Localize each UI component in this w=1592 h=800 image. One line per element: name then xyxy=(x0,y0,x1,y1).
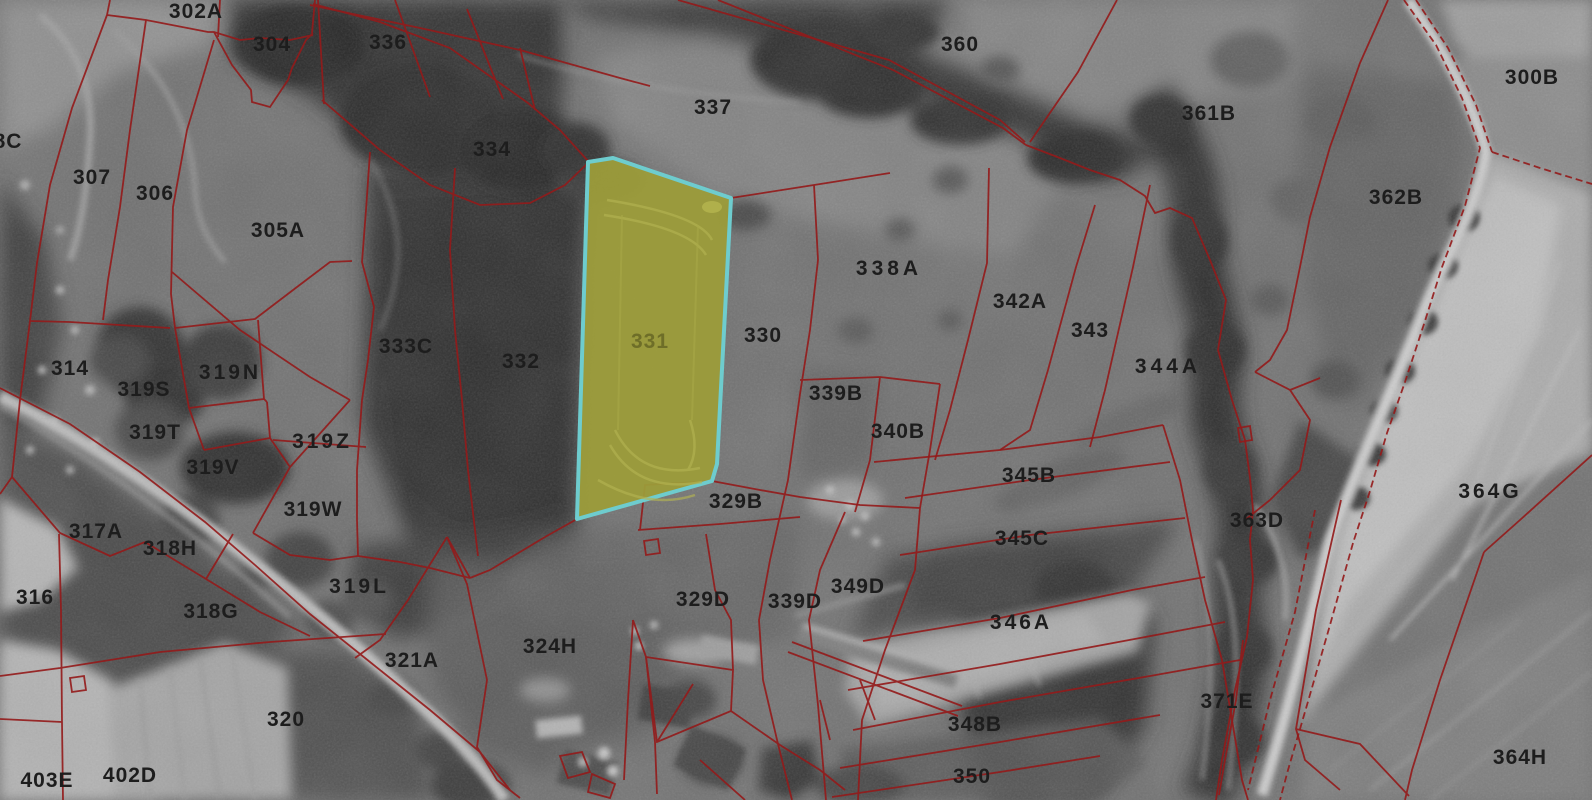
svg-text:319Z: 319Z xyxy=(292,430,352,453)
svg-text:333C: 333C xyxy=(379,335,433,358)
svg-text:345C: 345C xyxy=(995,527,1049,550)
svg-text:402D: 402D xyxy=(103,764,157,787)
svg-text:339D: 339D xyxy=(768,590,822,613)
svg-text:319V: 319V xyxy=(186,456,239,479)
svg-text:339B: 339B xyxy=(809,382,863,405)
svg-text:302A: 302A xyxy=(169,0,223,23)
svg-text:348B: 348B xyxy=(948,713,1002,736)
svg-text:329B: 329B xyxy=(709,490,763,513)
svg-text:317A: 317A xyxy=(69,520,123,543)
svg-text:364H: 364H xyxy=(1493,746,1547,769)
svg-text:364G: 364G xyxy=(1458,480,1521,503)
svg-text:342A: 342A xyxy=(993,290,1047,313)
svg-text:340B: 340B xyxy=(871,420,925,443)
svg-text:324H: 324H xyxy=(523,635,577,658)
svg-text:343: 343 xyxy=(1071,319,1109,342)
svg-text:329D: 329D xyxy=(676,588,730,611)
svg-text:337: 337 xyxy=(694,96,732,119)
svg-text:319N: 319N xyxy=(199,361,261,384)
svg-text:361B: 361B xyxy=(1182,102,1236,125)
svg-text:360: 360 xyxy=(941,33,979,56)
svg-text:336: 336 xyxy=(369,31,407,54)
svg-text:344A: 344A xyxy=(1135,355,1201,378)
svg-text:338A: 338A xyxy=(856,257,922,280)
svg-text:321A: 321A xyxy=(385,649,439,672)
svg-text:331: 331 xyxy=(631,330,669,353)
svg-text:319L: 319L xyxy=(329,575,389,598)
svg-text:314: 314 xyxy=(51,357,89,380)
svg-text:304: 304 xyxy=(253,33,291,56)
svg-text:350: 350 xyxy=(953,765,991,788)
svg-text:346A: 346A xyxy=(990,611,1052,634)
svg-text:332: 332 xyxy=(502,350,540,373)
svg-text:319S: 319S xyxy=(117,378,170,401)
svg-text:371E: 371E xyxy=(1200,690,1253,713)
svg-text:307: 307 xyxy=(73,166,111,189)
svg-text:318H: 318H xyxy=(143,537,197,560)
svg-text:363D: 363D xyxy=(1230,509,1284,532)
svg-text:300B: 300B xyxy=(1505,66,1559,89)
svg-text:403E: 403E xyxy=(20,769,73,792)
svg-text:362B: 362B xyxy=(1369,186,1423,209)
svg-text:320: 320 xyxy=(267,708,305,731)
svg-text:8C: 8C xyxy=(0,130,22,153)
svg-text:319W: 319W xyxy=(284,498,343,521)
svg-text:305A: 305A xyxy=(251,219,305,242)
svg-text:334: 334 xyxy=(473,138,511,161)
svg-text:318G: 318G xyxy=(183,600,238,623)
svg-text:306: 306 xyxy=(136,182,174,205)
svg-text:345B: 345B xyxy=(1002,464,1056,487)
svg-text:330: 330 xyxy=(744,324,782,347)
svg-text:316: 316 xyxy=(16,586,54,609)
svg-text:349D: 349D xyxy=(831,575,885,598)
svg-text:319T: 319T xyxy=(129,421,181,444)
